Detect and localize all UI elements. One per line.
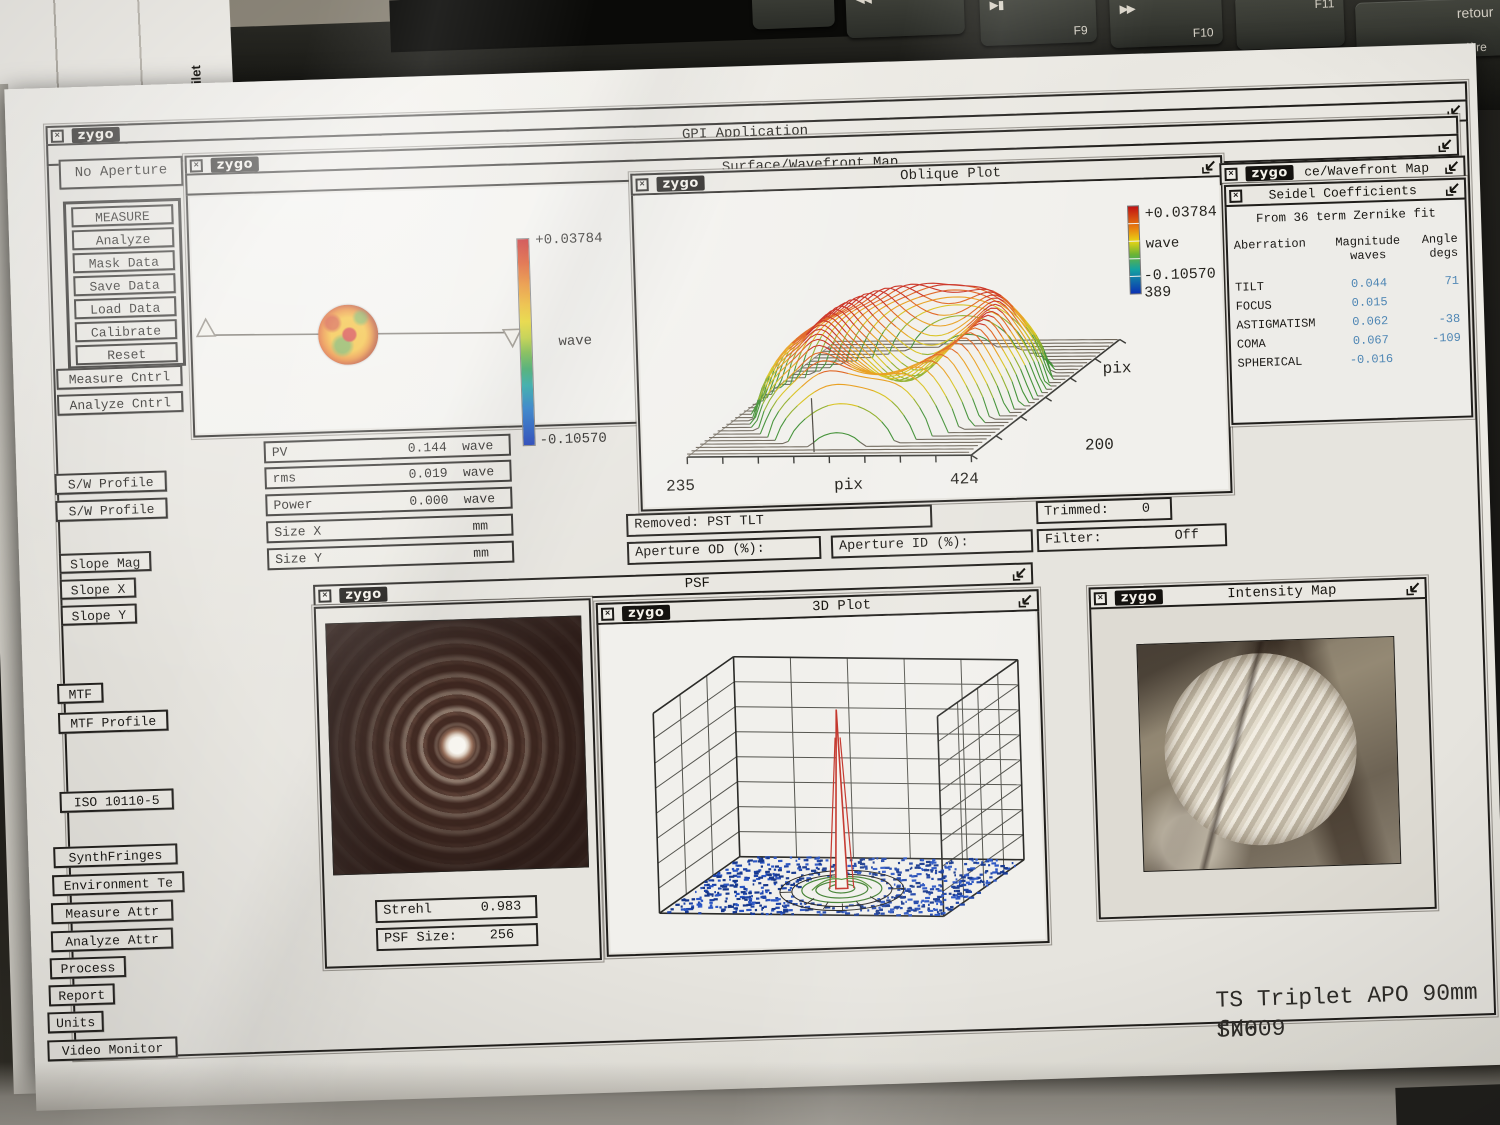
seidel-table: TILT0.04471 FOCUS0.015 ASTIGMATISM0.062-… (1235, 274, 1464, 371)
iso-10110-5-button[interactable]: ISO 10110-5 (59, 788, 174, 813)
close-icon[interactable]: × (318, 589, 331, 602)
seidel-content: From 36 term Zernike fit Aberration Magn… (1233, 206, 1464, 371)
oblique-color-scale (1128, 206, 1142, 294)
seidel-row-mag: 0.044 (1331, 275, 1407, 291)
keyboard-key-forward: ▶▶ F10 (1109, 0, 1223, 48)
window-menu-icon[interactable] (1404, 581, 1421, 597)
seidel-subtitle: From 36 term Zernike fit (1233, 206, 1459, 227)
interferogram-image (317, 304, 379, 366)
oblique-scale-unit: wave (1145, 236, 1179, 253)
oblique-x-label: pix (834, 476, 863, 495)
window-menu-icon[interactable] (1017, 593, 1034, 609)
fast-forward-icon: ▶▶ (1119, 0, 1134, 19)
mtf-profile-button[interactable]: MTF Profile (58, 710, 169, 734)
report-button[interactable]: Report (48, 983, 115, 1006)
intensity-window: × zygo Intensity Map (1088, 577, 1436, 919)
oblique-x-max: 424 (950, 470, 979, 489)
close-icon[interactable]: × (51, 129, 64, 142)
seidel-window-title: Seidel Coefficients (1245, 182, 1440, 203)
close-icon[interactable]: × (190, 159, 203, 172)
oblique-depth-label: pix (1102, 359, 1131, 378)
oblique-plot-window: × zygo Oblique Plot (630, 155, 1232, 511)
strehl-field: Strehl0.983 (375, 895, 538, 923)
mtf-button[interactable]: MTF (57, 683, 104, 704)
plot3d-window: × zygo 3D Plot (596, 589, 1050, 957)
psf-spike (774, 708, 904, 913)
slope-mag-button[interactable]: Slope Mag (59, 551, 152, 574)
zygo-logo: zygo (1245, 164, 1294, 181)
keyboard-key-rewind: ◀◀ (845, 0, 965, 38)
zygo-logo: zygo (211, 156, 260, 173)
intensity-image (1136, 636, 1401, 872)
seidel-row-mag: 0.015 (1331, 294, 1407, 310)
close-icon[interactable]: × (601, 607, 614, 620)
close-icon[interactable]: × (1224, 167, 1237, 180)
seidel-row-name: FOCUS (1236, 297, 1332, 314)
slope-x-button[interactable]: Slope X (60, 577, 137, 599)
intensity-pupil-circle (1162, 650, 1360, 848)
video-monitor-button[interactable]: Video Monitor (47, 1036, 178, 1061)
analyze-cntrl-button[interactable]: Analyze Cntrl (57, 391, 184, 416)
seidel-row-mag: -0.016 (1333, 351, 1409, 367)
zygo-logo: zygo (339, 586, 388, 603)
mask-data-button[interactable]: Mask Data (72, 250, 175, 273)
oblique-scale-max: +0.03784 (1145, 203, 1218, 222)
window-menu-icon[interactable] (1437, 137, 1454, 153)
annotation-line2: SN009 (1216, 1014, 1286, 1046)
measure-button-group: MEASURE Analyze Mask Data Save Data Load… (63, 198, 186, 370)
environment-button[interactable]: Environment Te (52, 871, 185, 896)
slope-y-button[interactable]: Slope Y (61, 603, 138, 625)
scale-unit-label: wave (558, 333, 592, 350)
keyboard-key-playpause: ▶▮ F9 (979, 0, 1097, 46)
zygo-logo: zygo (622, 604, 671, 621)
sw-profile-button-1[interactable]: S/W Profile (54, 470, 167, 495)
analyze-button[interactable]: Analyze (72, 227, 175, 250)
units-button[interactable]: Units (47, 1011, 104, 1034)
psf-airy-image (325, 616, 589, 876)
seidel-row-name: SPHERICAL (1237, 354, 1333, 371)
zygo-logo: zygo (1115, 589, 1164, 606)
close-icon[interactable]: × (1094, 591, 1107, 604)
seidel-row-name: COMA (1237, 335, 1333, 352)
seidel-row-mag: 0.067 (1333, 332, 1409, 348)
process-button[interactable]: Process (50, 956, 127, 979)
keyboard-key-f11: F11 (1235, 0, 1345, 50)
seidel-row-angle: -38 (1408, 312, 1460, 328)
synthfringes-button[interactable]: SynthFringes (53, 843, 178, 868)
sw-profile-button-2[interactable]: S/W Profile (55, 497, 168, 522)
analyze-attr-button[interactable]: Analyze Attr (51, 927, 174, 952)
scale-min-label: -0.10570 (539, 431, 607, 449)
measure-button[interactable]: MEASURE (71, 204, 174, 227)
window-menu-icon[interactable] (1444, 181, 1461, 197)
scale-max-label: +0.03784 (535, 231, 603, 249)
photo-dark-corner (1395, 1084, 1500, 1125)
oblique-depth-max: 200 (1085, 436, 1114, 455)
seidel-header: Aberration Magnitude Angle waves degs (1234, 232, 1461, 267)
seidel-window: × Seidel Coefficients From 36 term Zerni… (1224, 178, 1473, 425)
printed-screenshot: × zygo GPI Application No Aperture MEASU… (4, 43, 1500, 1111)
keyboard-key-partial (751, 0, 835, 30)
window-menu-icon[interactable] (1011, 566, 1028, 582)
intensity-window-title: Intensity Map (1163, 581, 1401, 604)
hidden-window-title: ce/Wavefront Map (1294, 160, 1440, 180)
measure-cntrl-button[interactable]: Measure Cntrl (56, 365, 183, 390)
measure-attr-button[interactable]: Measure Attr (51, 899, 174, 924)
load-data-button[interactable]: Load Data (74, 296, 177, 319)
zygo-logo: zygo (72, 126, 121, 143)
trimmed-field: Trimmed:0 (1036, 497, 1173, 524)
window-menu-icon[interactable] (1443, 159, 1460, 175)
seidel-row-angle (1407, 293, 1459, 309)
calibrate-button[interactable]: Calibrate (75, 319, 178, 342)
save-data-button[interactable]: Save Data (73, 273, 176, 296)
psf-window: Strehl0.983 PSF Size:256 (314, 598, 602, 969)
close-icon[interactable]: × (635, 178, 648, 191)
oblique-surface (682, 277, 1121, 461)
seidel-row-name: ASTIGMATISM (1236, 316, 1332, 333)
photo-stage: ◀◀ ▶▮ F9 ▶▶ F10 F11 retour arrière eau f… (0, 0, 1500, 1125)
plastic-sleeve (0, 1062, 1500, 1125)
seidel-row-mag: 0.062 (1332, 313, 1408, 329)
seidel-row-angle (1409, 350, 1461, 366)
oblique-plot-area: +0.03784 wave -0.10570 389 235 pix 424 p… (635, 177, 1229, 507)
rewind-icon: ◀◀ (855, 0, 870, 9)
close-icon[interactable]: × (1229, 189, 1242, 202)
seidel-row-angle: -109 (1409, 331, 1461, 347)
oblique-points-label: 389 (1144, 284, 1172, 302)
window-menu-icon[interactable] (1200, 159, 1217, 175)
seidel-row-angle: 71 (1407, 274, 1459, 290)
seidel-row-name: TILT (1235, 278, 1331, 295)
plot3d-area (600, 611, 1045, 953)
play-pause-icon: ▶▮ (989, 0, 1004, 15)
zygo-logo: zygo (656, 175, 705, 192)
oblique-scale-min: -0.10570 (1143, 265, 1216, 284)
psf-size-field: PSF Size:256 (376, 923, 539, 951)
no-aperture-button[interactable]: No Aperture (59, 156, 184, 190)
oblique-x-min: 235 (666, 477, 695, 496)
reset-button[interactable]: Reset (75, 342, 178, 365)
